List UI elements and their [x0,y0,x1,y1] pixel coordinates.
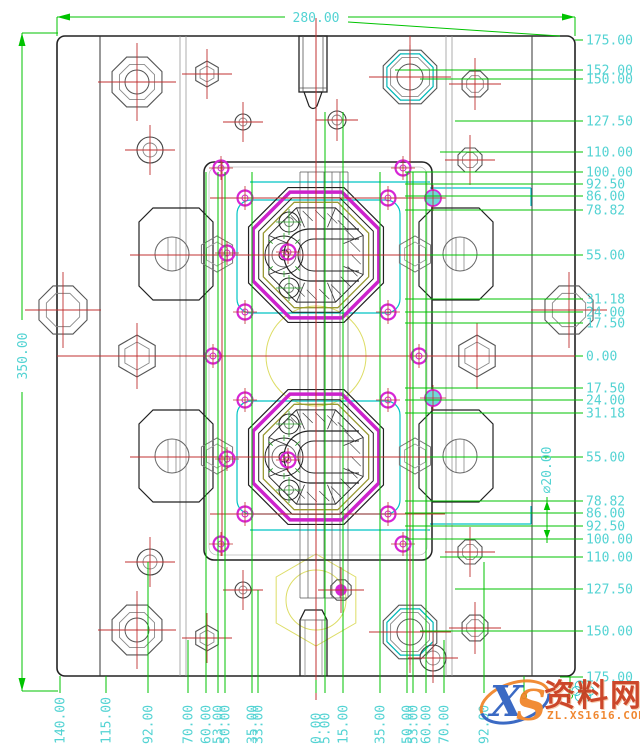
dim-leader [348,22,560,36]
cavity-hatch [331,487,341,497]
cavity-hatch [341,479,351,489]
dim-label-right: 127.50 [586,583,633,598]
dim-label-top: 280.00 [293,11,340,26]
cavity-facet-line [344,235,363,243]
sprue-tip [304,92,322,109]
dim-label-right: 175.00 [586,34,633,49]
clamp-hexagon [405,242,426,266]
dim-arrow [544,501,550,510]
dim-label-right: 55.00 [586,249,625,264]
dim-label-bottom: 5.00 [319,713,334,744]
cavity-facet-line [344,468,363,476]
watermark-site-url: ZL.XS1616.COM [547,709,640,722]
cavity-block-outline [204,162,432,560]
cavity-facet-line [344,437,363,445]
watermark: X S 资料网 ZL.XS1616.COM [478,660,640,747]
dim-label-bottom: 33.00 [252,705,267,744]
dim-label-bottom: 70.00 [438,705,453,744]
dim-label-right: 150.00 [586,73,633,88]
dim-arrow [19,678,26,691]
clamp-bore [155,237,189,271]
cavity-hatch [350,242,360,252]
dim-label-right: 150.00 [586,625,633,640]
dimensions-layer: 280.00350.00175.00152.00150.00127.50110.… [16,11,633,744]
clamp-bore [443,237,477,271]
logo-letter-s: S [516,681,546,730]
dim-label-right: 55.00 [586,451,625,466]
cad-drawing-stage: 280.00350.00175.00152.00150.00127.50110.… [0,0,640,747]
clamp-hexagon [405,444,426,468]
dim-label-bottom: 115.00 [100,697,115,744]
clamp-bore [155,439,189,473]
cavity-block-inner [209,167,427,555]
cavity-facet-line [344,266,363,274]
dim-label-bottom: 15.00 [337,705,352,744]
clamp-bore [443,439,477,473]
dim-label-diameter: ∅20.00 [540,447,555,494]
dim-label-bottom: 60.00 [420,705,435,744]
mold-plate-drawing: 280.00350.00175.00152.00150.00127.50110.… [0,0,640,747]
cavity-hatch [341,277,351,287]
dim-label-bottom: 50.00 [219,705,234,744]
cooling-channels-layer [237,54,531,655]
cavity-hatch [291,417,301,427]
dim-arrow [19,33,26,46]
dim-arrow [57,14,70,21]
cavity-hatch [331,285,341,295]
dim-label-right: 86.00 [586,190,625,205]
dim-label-bottom: 92.00 [142,705,157,744]
clamp-hexagon [207,444,228,468]
dim-label-right: 0.00 [586,350,617,365]
cavity-facet-line [327,485,335,504]
dim-label-right: 110.00 [586,551,633,566]
dim-label-bottom: 140.00 [54,697,69,744]
cavity-hatch [350,444,360,454]
dim-label-right: 17.50 [586,317,625,332]
dim-label-right: 31.18 [586,407,625,422]
dim-arrow [544,530,550,539]
cavity-hatch [291,215,301,225]
dim-label-left: 350.00 [16,333,31,380]
dim-arrow [562,14,575,21]
cavity-hatch [351,456,361,466]
dim-label-right: 100.00 [586,533,633,548]
dim-label-right: 78.82 [586,204,625,219]
dim-label-bottom: 35.00 [374,705,389,744]
dim-label-bottom: 70.00 [182,705,197,744]
dim-label-right: 127.50 [586,115,633,130]
dim-label-right: 110.00 [586,146,633,161]
cavity-hatch [351,254,361,264]
cavity-facet-line [327,283,335,302]
